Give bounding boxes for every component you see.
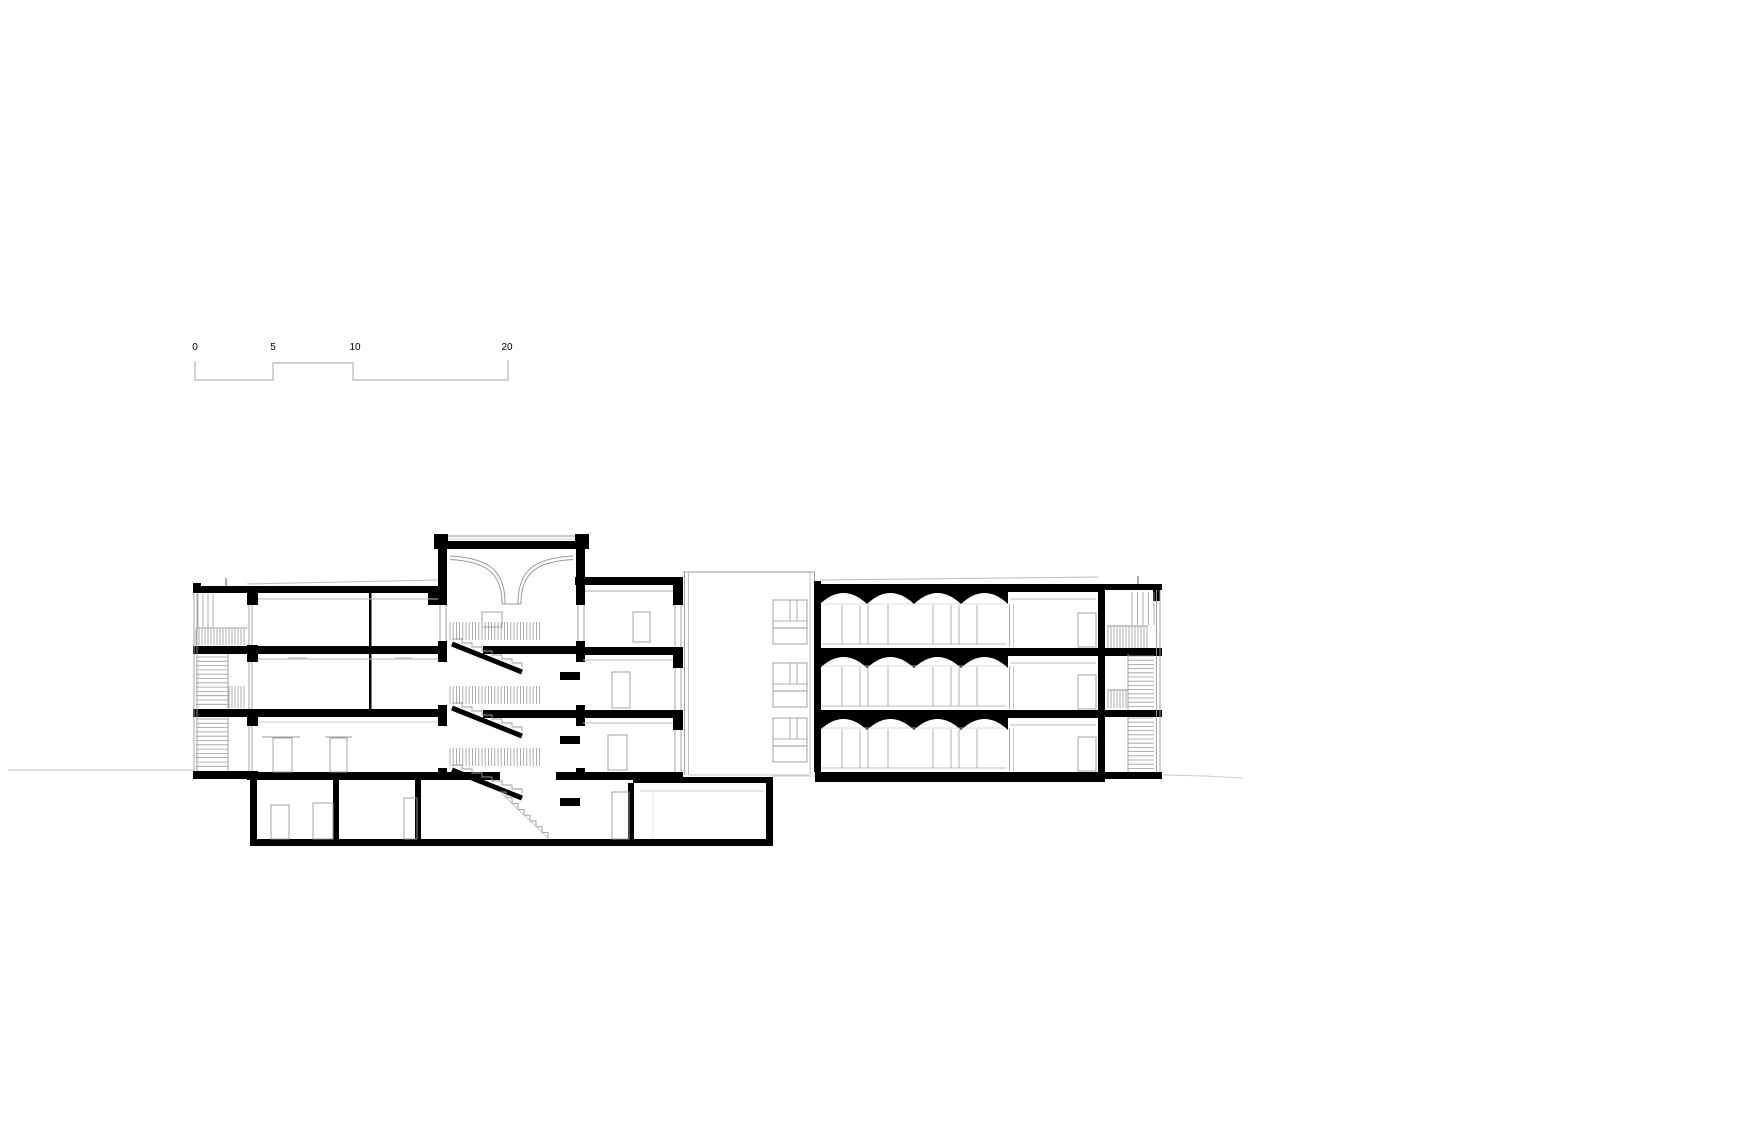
scale-label-0: 0 xyxy=(192,342,198,353)
canvas: 0 5 10 20 xyxy=(0,0,1757,1142)
section-drawing: 0 5 10 20 xyxy=(0,0,1757,1142)
rear-connector-windows xyxy=(773,600,807,762)
tower-vault xyxy=(450,556,573,604)
stair-flights xyxy=(452,639,548,838)
vaulted-ceiling-slabs xyxy=(820,584,1008,730)
right-wing-interior xyxy=(822,604,1096,771)
terrain-line-right xyxy=(1163,775,1242,778)
scale-label-10: 10 xyxy=(349,342,361,353)
scale-label-20: 20 xyxy=(501,342,513,353)
scale-bar-line xyxy=(195,360,508,380)
scale-bar: 0 5 10 20 xyxy=(192,342,513,380)
structure-cut-walls-and-slabs xyxy=(193,534,1162,846)
scale-label-5: 5 xyxy=(270,342,276,353)
